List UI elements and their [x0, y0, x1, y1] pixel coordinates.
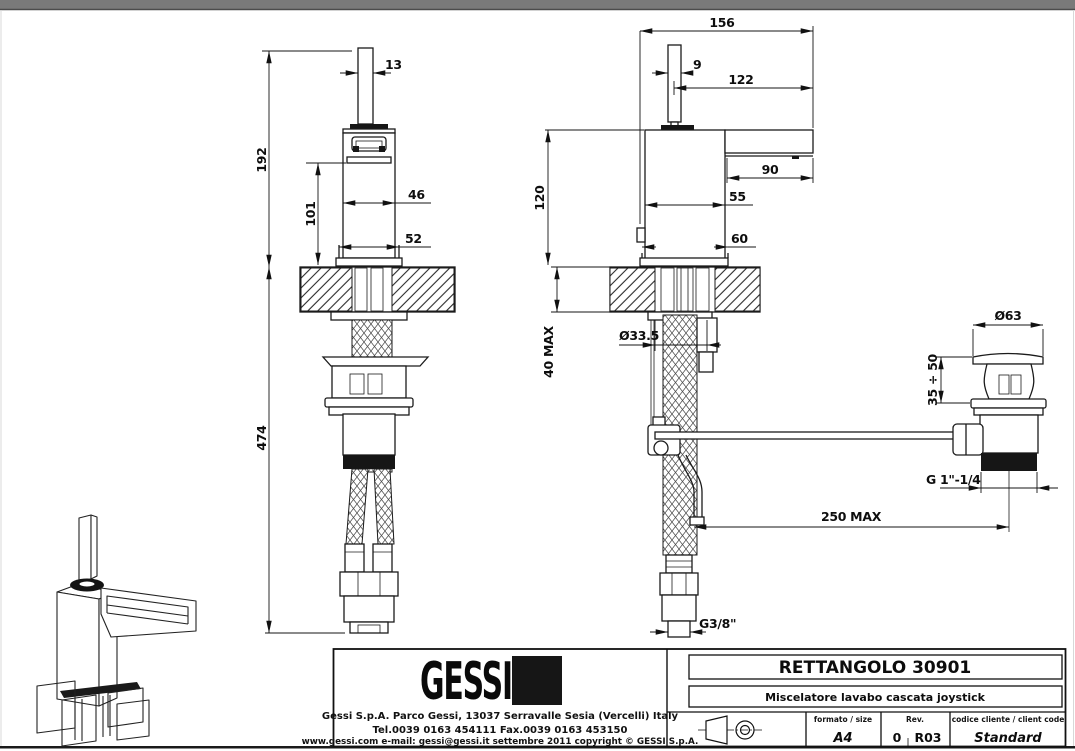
popup-waste-front — [323, 357, 428, 469]
gessi-logo-text: GESSI — [420, 652, 512, 712]
company-address: Gessi S.p.A. Parco Gessi, 13037 Serraval… — [322, 711, 679, 722]
dim-handle-to-tip: 122 — [728, 72, 753, 87]
client-code-value: Standard — [974, 731, 1042, 746]
dim-base-width: 52 — [405, 231, 422, 246]
client-code-label: codice cliente / client code — [952, 715, 1065, 724]
side-view: 156 9 122 120 90 55 60 40 MAX — [532, 15, 1009, 637]
dim-body-depth: 55 — [729, 189, 746, 204]
faucet-body-front — [343, 133, 395, 258]
joystick-handle-front — [358, 48, 373, 124]
iso-spout — [101, 588, 196, 637]
isometric-view — [37, 515, 196, 746]
company-phone: Tel.0039 0163 454111 Fax.0039 0163 45315… — [373, 725, 628, 736]
dim-adjust-range: 35 ÷ 50 — [925, 353, 940, 405]
iso-joystick — [79, 515, 91, 582]
popup-linkage-rod — [655, 432, 958, 439]
rod-coupler — [953, 424, 983, 455]
product-subtitle: Miscelatore lavabo cascata joystick — [765, 691, 986, 704]
joystick-handle-side — [668, 45, 681, 122]
drain-thread-section — [981, 453, 1037, 471]
rev-label: Rev. — [906, 715, 924, 724]
dim-handle-depth: 9 — [693, 57, 701, 72]
drawing-sheet: 13 192 101 46 52 474 — [0, 0, 1075, 751]
drain-body — [980, 415, 1038, 453]
dim-supply-thread: G3/8" — [699, 616, 736, 631]
faucet-front — [336, 48, 402, 266]
dim-drain-thread: G 1"-1/4 — [926, 472, 981, 487]
top-bar — [0, 0, 1075, 9]
title-block: GESSI Gessi S.p.A. Parco Gessi, 13037 Se… — [302, 649, 1066, 747]
faucet-body-side — [645, 130, 725, 265]
hose-fittings-side — [660, 555, 698, 637]
dim-height-above-counter: 120 — [532, 185, 547, 211]
drain-detail-view: Ø63 35 ÷ 50 G 1"-1/4 — [925, 308, 1058, 532]
rev-code: R03 — [914, 730, 941, 745]
dim-handle-width: 13 — [385, 57, 402, 72]
faucet-side — [637, 45, 813, 266]
faucet-base-front — [336, 258, 402, 266]
dim-under-counter-height: 474 — [254, 425, 269, 451]
dim-base-depth: 60 — [731, 231, 748, 246]
hose-fittings-front — [340, 544, 398, 633]
front-view: 13 192 101 46 52 474 — [254, 48, 455, 633]
mounting-nut — [331, 312, 407, 320]
technical-drawing-canvas: 13 192 101 46 52 474 — [0, 0, 1075, 751]
rev-value: 0 — [893, 730, 902, 745]
gessi-logo: GESSI — [420, 652, 562, 712]
dim-hole-diameter: Ø33.5 — [619, 328, 659, 343]
dim-counter-thickness: 40 MAX — [541, 325, 556, 377]
dim-hose-reach: 250 MAX — [821, 509, 882, 524]
dim-spout-projection: 90 — [762, 162, 779, 177]
waterfall-spout — [725, 130, 813, 153]
format-label: formato / size — [814, 715, 872, 724]
dim-flange-diameter: Ø63 — [994, 308, 1021, 323]
format-value: A4 — [832, 731, 852, 746]
drain-flange — [973, 354, 1043, 365]
side-dimensions: 156 9 122 120 90 55 60 40 MAX — [532, 15, 1009, 632]
gessi-logo-square — [512, 656, 562, 705]
product-title: RETTANGOLO 30901 — [779, 658, 972, 678]
faucet-base-side — [640, 258, 728, 266]
dim-overall-depth: 156 — [709, 15, 735, 30]
company-web: www.gessi.com e-mail: gessi@gessi.it set… — [302, 737, 699, 747]
dim-overall-height: 192 — [254, 147, 269, 172]
dim-body-width: 46 — [408, 187, 425, 202]
dim-body-height: 101 — [303, 201, 318, 226]
